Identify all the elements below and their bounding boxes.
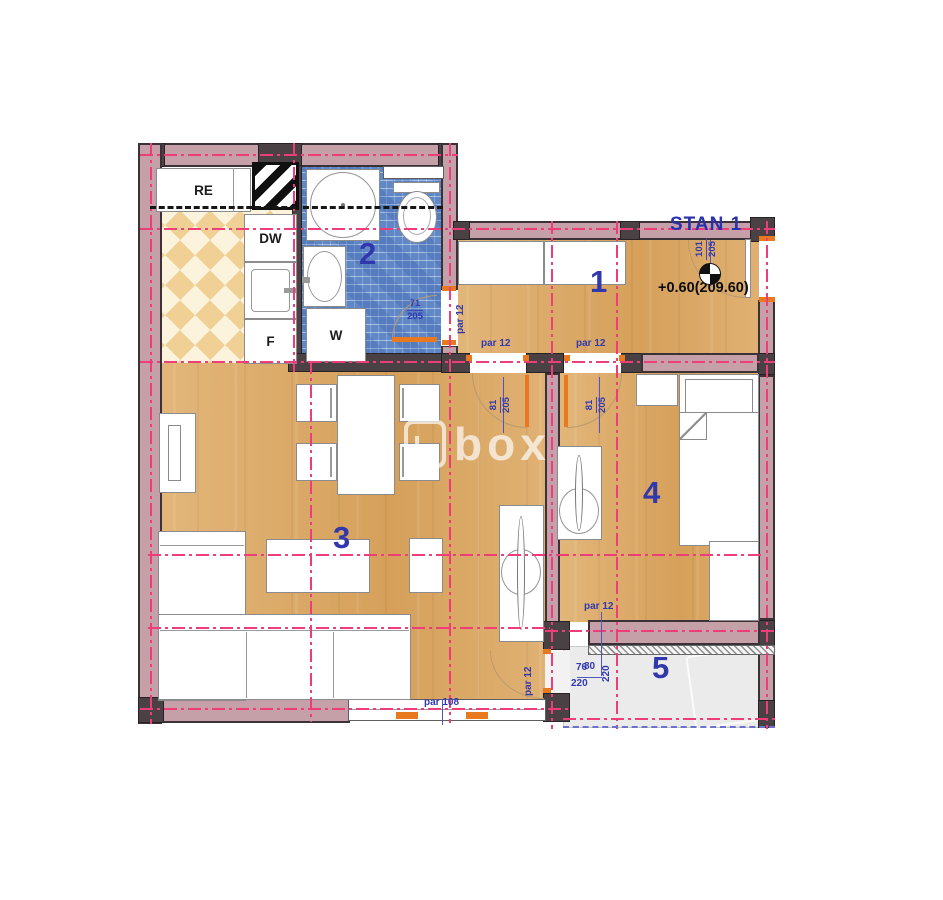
door-opening-balcony [545,651,570,693]
centerline [616,221,618,729]
centerline [551,221,553,729]
washing-machine-label: W [330,328,343,343]
door-jamb-marker [543,688,551,693]
balcony-edge-line [563,726,775,728]
dim-par12-balcony-door: par 12 [523,667,534,696]
wall-block-hall-bottom-b [526,353,564,373]
wall-block-hall-top-mid [620,221,640,240]
dim-entry-height: 205 [707,238,719,260]
bathroom-window [383,166,444,179]
bedroom-wardrobe-mirror [575,455,583,531]
dim-balcony-width-b: 80 [584,661,595,672]
bed-pillow [685,379,753,415]
washing-machine: W [306,308,366,362]
centerline [140,361,775,363]
side-table [409,538,443,593]
room-number-living: 3 [333,522,350,553]
dim-living-door-width: 81 [488,397,501,414]
dim-balcony-height: 220 [601,665,612,682]
centerline [563,718,775,720]
window-marker-left [396,712,418,719]
freezer: F [244,319,297,364]
blanket-fold [679,412,707,440]
room-number-bathroom: 2 [359,238,376,269]
room-number-hallway: 1 [590,266,607,297]
centerline [148,627,550,629]
wall-block-hall-top-left [453,221,470,240]
dim-entry-door: 101 205 [694,226,720,272]
dishwasher: DW [244,214,297,262]
window-marker-right [466,712,488,719]
centerline [140,154,458,156]
bedroom-desk [709,541,759,621]
dim-bathroom-door-width: 71 [407,298,424,311]
dim-bathroom-door: 71 205 [398,298,432,326]
watermark-logo-inner [415,436,434,458]
coffee-table [266,539,370,593]
wall-bedroom-bottom [588,620,760,645]
chair-seat-line [402,388,404,418]
dining-chair [399,384,440,422]
dim-balcony-height-b: 220 [571,678,588,689]
dim-par12-bedroom-door: par 12 [576,338,605,349]
nightstand [636,374,678,406]
dim-par12-balcony: par 12 [584,601,613,612]
chair-seat-line [330,447,332,477]
centerline [766,221,768,729]
sofa-cushion-divider [246,632,247,698]
dim-entry-width: 101 [694,238,707,260]
wall-bedroom-top [641,353,759,373]
living-wardrobe-mirror [517,516,525,630]
centerline [140,708,572,710]
freezer-label: F [266,334,274,349]
dim-bathroom-door-height: 205 [404,311,426,323]
dim-par108-window: par 108 [424,697,459,708]
dishwasher-label: DW [259,231,282,246]
upper-cabinet-dashed-line [303,206,443,209]
dim-bedroom-door-width: 81 [584,397,597,414]
refrigerator-label: RE [194,183,213,198]
dim-living-door-height: 205 [501,394,513,416]
centerline [545,630,775,632]
room-number-bedroom: 4 [643,477,660,508]
wall-block-balcony-door-top [543,621,570,650]
vent-shaft [252,162,299,210]
chair-seat-line [330,388,332,418]
centerline [148,554,762,556]
door-jamb-marker [543,649,551,654]
hall-closet-right [544,241,626,285]
centerline [293,143,295,373]
watermark: box [404,420,551,468]
hall-closet-left [458,241,544,285]
sofa-back-line [160,545,244,546]
door-opening-living [470,353,526,373]
door-opening-bedroom [564,353,621,373]
dim-bedroom-door-height: 205 [597,394,609,416]
watermark-logo-icon [404,420,446,468]
floor-plan: RE DW F W [0,0,943,900]
upper-cabinet-dashed-line [150,206,296,209]
sofa-cushion-divider [333,632,334,698]
bathroom-door-leaf [392,337,437,342]
dim-par12-living-door: par 12 [481,338,510,349]
dim-bedroom-door: 81 205 [584,376,610,434]
bathroom-sink-basin [307,251,342,302]
watermark-text: box [454,421,551,467]
sofa-seat-line [160,630,409,631]
bedroom-door-leaf [564,375,568,427]
centerline [150,143,152,724]
room-number-balcony: 5 [652,652,669,683]
centerline [310,361,312,722]
wall-cabinet-inner [168,425,181,481]
dining-table [337,375,395,495]
dim-par12-hall: par 12 [455,305,466,334]
bathroom-faucet [302,277,310,283]
